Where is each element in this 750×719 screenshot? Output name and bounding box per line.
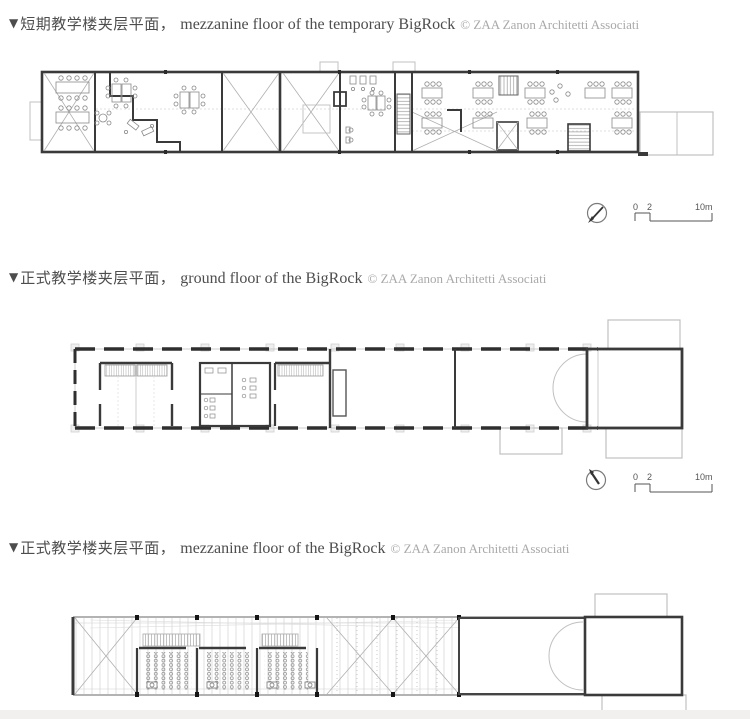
plan-ground-floor-bigrock: 0 2 10m [0, 308, 750, 513]
next-image-edge [0, 710, 750, 719]
plan-mezzanine-temporary-bigrock: 0 2 10m [0, 52, 750, 242]
figure3-caption: ▼正式教学楼夹层平面，mezzanine floor of the BigRoc… [9, 537, 569, 558]
fixtures-service-zone [346, 76, 391, 143]
scale-bar: 0 2 10m [633, 202, 713, 221]
svg-text:10m: 10m [695, 472, 713, 482]
bathroom-fixtures [204, 368, 256, 418]
caption-en-text: mezzanine floor of the BigRock [180, 540, 385, 557]
caption-zh-text: 正式教学楼夹层平面， [20, 271, 175, 287]
caption-zh-text: 短期教学楼夹层平面， [20, 17, 175, 33]
caption-marker-icon: ▼ [9, 270, 18, 284]
furniture-open-office [422, 82, 632, 134]
caption-marker-icon: ▼ [9, 16, 18, 30]
furniture-middle [95, 78, 205, 136]
svg-text:2: 2 [647, 472, 652, 482]
article-page: ▼短期教学楼夹层平面，mezzanine floor of the tempor… [0, 0, 750, 719]
north-arrow-icon [587, 469, 606, 490]
scale-bar: 0 2 10m [633, 472, 713, 492]
caption-credit-text: © ZAA Zanon Architetti Associati [460, 17, 639, 32]
figure1-caption: ▼短期教学楼夹层平面，mezzanine floor of the tempor… [9, 13, 639, 34]
north-arrow-icon [588, 204, 607, 224]
svg-text:0: 0 [633, 202, 638, 212]
svg-text:0: 0 [633, 472, 638, 482]
caption-credit-text: © ZAA Zanon Architetti Associati [391, 541, 570, 556]
building-3 [73, 594, 686, 712]
caption-en-text: mezzanine floor of the temporary BigRock [180, 16, 455, 33]
caption-credit-text: © ZAA Zanon Architetti Associati [367, 271, 546, 286]
building-1 [30, 62, 713, 156]
furniture-left-room [56, 76, 89, 130]
plan-mezzanine-bigrock [0, 588, 750, 719]
figure2-caption: ▼正式教学楼夹层平面，ground floor of the BigRock© … [9, 267, 546, 288]
building-2 [71, 320, 682, 458]
svg-text:10m: 10m [695, 202, 713, 212]
caption-en-text: ground floor of the BigRock [180, 270, 362, 287]
caption-marker-icon: ▼ [9, 540, 18, 554]
svg-text:2: 2 [647, 202, 652, 212]
caption-zh-text: 正式教学楼夹层平面， [20, 541, 175, 557]
